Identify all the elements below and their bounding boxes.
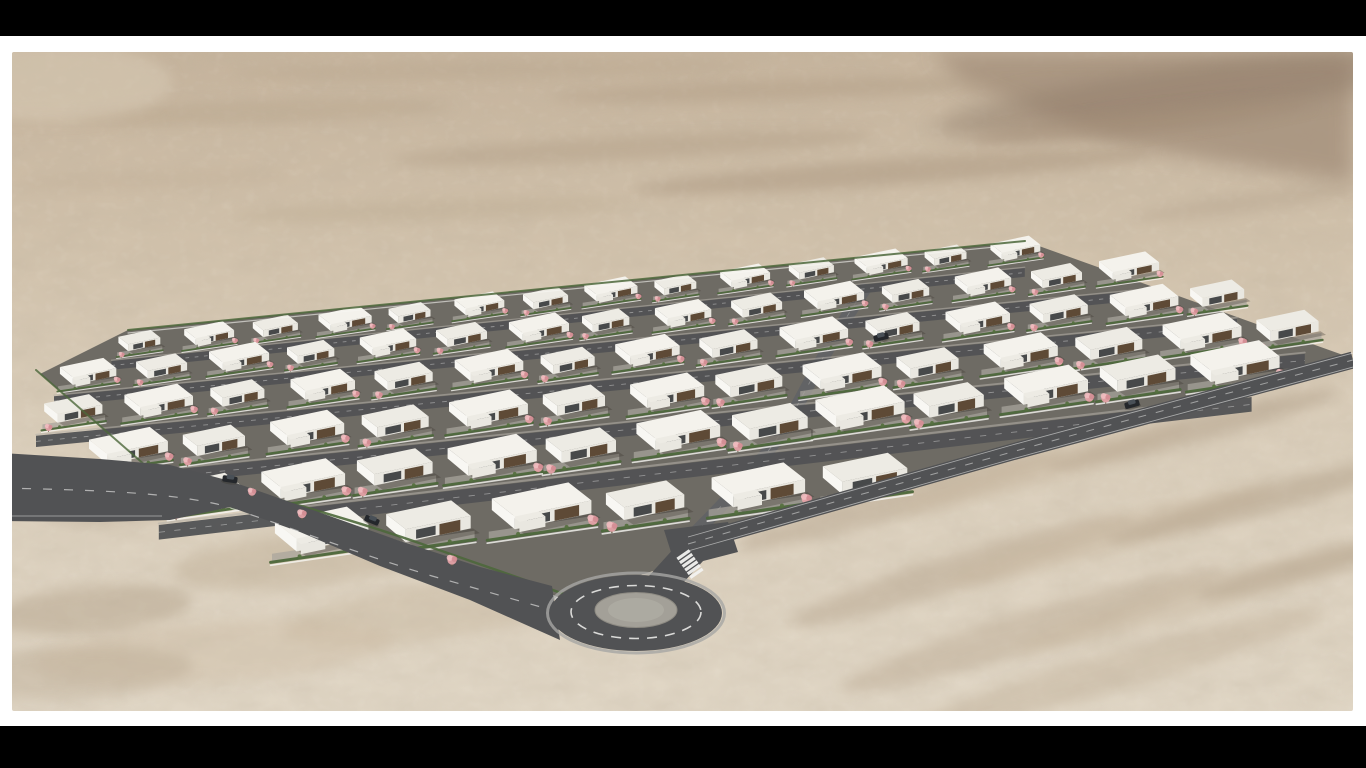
shrub (955, 265, 957, 267)
tree-canopy (771, 281, 774, 284)
shrub (868, 275, 870, 277)
shrub (1038, 365, 1041, 368)
tree-canopy (928, 267, 931, 270)
shrub (1271, 344, 1274, 347)
shrub (893, 305, 895, 307)
shrub (1127, 318, 1130, 321)
tree-canopy (363, 488, 368, 493)
shrub (905, 338, 908, 341)
shrub (412, 483, 416, 487)
shrub (554, 377, 557, 380)
shrub (593, 335, 595, 337)
shrub (448, 540, 452, 544)
tree-canopy (538, 464, 543, 469)
shrub (1044, 325, 1047, 328)
tree-canopy (122, 353, 125, 356)
tree-canopy (1105, 395, 1110, 400)
shrub (378, 440, 381, 443)
shrub (648, 410, 651, 413)
shrub (616, 331, 618, 333)
shrub (1003, 261, 1005, 263)
shrub (713, 360, 716, 363)
shrub (996, 292, 998, 294)
letterbox-top-bar (0, 0, 1366, 36)
tree-canopy (705, 399, 710, 404)
tree-canopy (1089, 394, 1094, 399)
tree-canopy (883, 379, 888, 384)
shrub (473, 346, 475, 348)
shrub (198, 459, 201, 462)
shrub (562, 466, 566, 470)
shrub (101, 383, 103, 385)
tree-canopy (908, 267, 911, 270)
shrub (469, 478, 473, 482)
shrub (796, 351, 799, 354)
tree-canopy (140, 380, 144, 384)
tree-canopy (533, 463, 539, 469)
shrub (516, 532, 520, 536)
shrub (935, 268, 937, 270)
shrub (250, 405, 253, 408)
shrub (524, 342, 526, 344)
tree-canopy (356, 391, 360, 395)
shrub (800, 281, 802, 283)
tree-canopy (865, 301, 869, 305)
shrub (597, 461, 601, 465)
shrub (1160, 313, 1163, 316)
tree-canopy (117, 378, 121, 382)
shrub (556, 308, 558, 310)
shrub (411, 435, 414, 438)
shrub (764, 395, 767, 398)
tree-canopy (452, 556, 458, 562)
shrub (1068, 287, 1070, 289)
shrub (930, 421, 934, 425)
shrub (881, 424, 885, 428)
shrub (332, 333, 334, 335)
tree-canopy (735, 319, 739, 323)
shrub (565, 525, 569, 529)
shrub (625, 524, 629, 528)
shrub (1229, 306, 1232, 309)
tree-canopy (235, 339, 238, 342)
shrub (1065, 402, 1069, 406)
letterbox-bottom-bar (0, 726, 1366, 768)
shrub (417, 389, 420, 392)
shrub (993, 330, 996, 333)
shrub (74, 387, 76, 389)
tree-canopy (392, 325, 395, 328)
shrub (732, 289, 734, 291)
shrub (969, 296, 971, 298)
tree-canopy (1041, 253, 1044, 256)
tree-canopy (169, 454, 174, 459)
shrub (663, 518, 667, 522)
tree-canopy (901, 414, 907, 420)
shrub (1114, 281, 1116, 283)
shrub (148, 381, 150, 383)
tree-canopy (270, 362, 274, 366)
tree-canopy (187, 459, 192, 464)
tree-canopy (302, 511, 307, 516)
shrub (1155, 390, 1159, 394)
shrub (338, 397, 341, 400)
tree-canopy (1011, 324, 1015, 328)
shrub (911, 382, 914, 385)
tree-canopy (341, 486, 347, 492)
shrub (1091, 363, 1094, 366)
tree-canopy (1084, 393, 1090, 399)
shrub (467, 317, 469, 319)
shrub (534, 311, 536, 313)
tree-canopy (806, 495, 812, 501)
roundabout (548, 573, 725, 653)
shrub (662, 362, 665, 365)
tree-canopy (885, 305, 889, 309)
tree-canopy (570, 333, 574, 337)
shrub (223, 409, 226, 412)
shrub (597, 303, 599, 305)
shrub (448, 349, 450, 351)
tree-canopy (417, 348, 421, 352)
tree-canopy (1194, 309, 1198, 313)
shrub (228, 455, 231, 458)
shrub (1203, 309, 1206, 312)
tree-canopy (45, 424, 49, 428)
tree-canopy (721, 439, 726, 444)
shrub (742, 356, 745, 359)
tree-canopy (440, 349, 444, 353)
tree-canopy (585, 334, 589, 338)
shrub (822, 278, 824, 280)
shrub (848, 307, 850, 309)
tree-canopy (545, 376, 549, 380)
shrub (965, 416, 969, 420)
shrub (224, 372, 226, 374)
tree-canopy (869, 342, 873, 346)
shrub (399, 325, 401, 327)
shrub (141, 418, 144, 421)
tree-canopy (256, 339, 259, 342)
shrub (734, 510, 738, 514)
shrub (768, 316, 770, 318)
tree-canopy (1179, 307, 1183, 311)
shrub (253, 368, 255, 370)
tree-canopy (1059, 358, 1064, 363)
tree-canopy (792, 281, 795, 284)
shrub (306, 402, 309, 405)
tree-canopy (712, 319, 716, 323)
shrub (288, 448, 291, 451)
shrub (87, 421, 90, 424)
shrub (623, 299, 625, 301)
tree-canopy (346, 488, 351, 493)
tree-canopy (375, 391, 379, 395)
shrub (580, 373, 583, 376)
shrub (149, 350, 151, 352)
tree-canopy (700, 359, 704, 363)
tree-canopy (681, 357, 685, 361)
tree-canopy (593, 516, 599, 522)
aerial-render-scene (12, 52, 1353, 711)
shrub (58, 425, 61, 428)
shrub (175, 413, 178, 416)
shrub (684, 405, 687, 408)
shrub (298, 366, 300, 368)
tree-canopy (720, 400, 725, 405)
tree-canopy (372, 324, 375, 327)
shrub (1043, 290, 1045, 292)
shrub (631, 367, 634, 370)
shrub (1124, 358, 1127, 361)
tree-canopy (379, 393, 383, 397)
shrub (196, 347, 198, 349)
shrub (1002, 370, 1005, 373)
shrub (1025, 408, 1029, 412)
tree-canopy (717, 438, 723, 444)
tree-canopy (547, 418, 552, 423)
tree-canopy (704, 360, 708, 364)
shrub (685, 294, 687, 296)
shrub (750, 443, 754, 447)
shrub (128, 353, 130, 355)
shrub (893, 271, 895, 273)
shrub (322, 495, 326, 499)
tree-canopy (919, 420, 924, 425)
shrub (513, 472, 517, 476)
shrub (321, 363, 323, 365)
tree-canopy (914, 419, 920, 425)
shrub (780, 504, 784, 508)
shrub (374, 357, 376, 359)
shrub (757, 286, 759, 288)
tree-canopy (252, 489, 257, 494)
tree-canopy (367, 440, 372, 445)
shrub (916, 302, 918, 304)
shrub (507, 423, 510, 426)
tree-canopy (658, 297, 661, 300)
shrub (221, 343, 223, 345)
tree-canopy (1034, 325, 1038, 329)
tree-canopy (1030, 324, 1034, 328)
shrub (1212, 385, 1216, 389)
tree-canopy (529, 416, 534, 421)
shrub (1027, 258, 1029, 260)
aerial-rendering-photo (12, 52, 1353, 711)
tree-canopy (1160, 272, 1164, 276)
shrub (388, 393, 391, 396)
shrub (324, 443, 327, 446)
tree-canopy (612, 523, 618, 529)
tree-canopy (49, 425, 53, 429)
shrub (298, 554, 302, 558)
tree-canopy (849, 340, 853, 344)
shrub (468, 429, 471, 432)
tree-canopy (638, 295, 641, 298)
shrub (837, 430, 841, 434)
shrub (696, 324, 698, 326)
shrub (286, 336, 288, 338)
tree-canopy (1035, 290, 1039, 294)
tree-canopy (551, 466, 556, 471)
tree-canopy (505, 309, 508, 312)
tree-canopy (1012, 287, 1016, 291)
shrub (375, 489, 379, 493)
shrub (588, 414, 591, 417)
shrub (357, 329, 359, 331)
tree-canopy (345, 436, 350, 441)
tree-canopy (738, 443, 743, 448)
shrub (669, 328, 671, 330)
roundabout-island-center (608, 598, 664, 622)
tree-canopy (194, 407, 198, 411)
shrub (558, 419, 561, 422)
shrub (830, 346, 833, 349)
tree-canopy (524, 372, 528, 376)
shrub (173, 377, 175, 379)
tree-canopy (214, 409, 218, 413)
shrub (698, 447, 702, 451)
shrub (264, 339, 266, 341)
shrub (860, 386, 863, 389)
shrub (743, 320, 745, 322)
shrub (787, 438, 791, 442)
shrub (553, 338, 555, 340)
tree-canopy (1080, 362, 1085, 367)
tree-canopy (906, 416, 911, 421)
shrub (819, 311, 821, 313)
tree-canopy (526, 311, 529, 314)
shrub (942, 377, 945, 380)
shrub (657, 453, 661, 457)
shrub (505, 378, 508, 381)
shrub (401, 353, 403, 355)
shrub (1143, 277, 1145, 279)
shrub (731, 400, 734, 403)
shrub (1118, 395, 1122, 399)
tree-canopy (901, 381, 906, 386)
shrub (471, 383, 474, 386)
shrub (822, 392, 825, 395)
shrub (664, 297, 666, 299)
shrub (1182, 351, 1185, 354)
tree-canopy (290, 366, 294, 370)
shrub (1072, 321, 1075, 324)
tree-canopy (546, 464, 552, 470)
shrub (1302, 340, 1305, 343)
shrub (491, 313, 493, 315)
shrub (419, 322, 421, 324)
shrub (961, 335, 964, 338)
